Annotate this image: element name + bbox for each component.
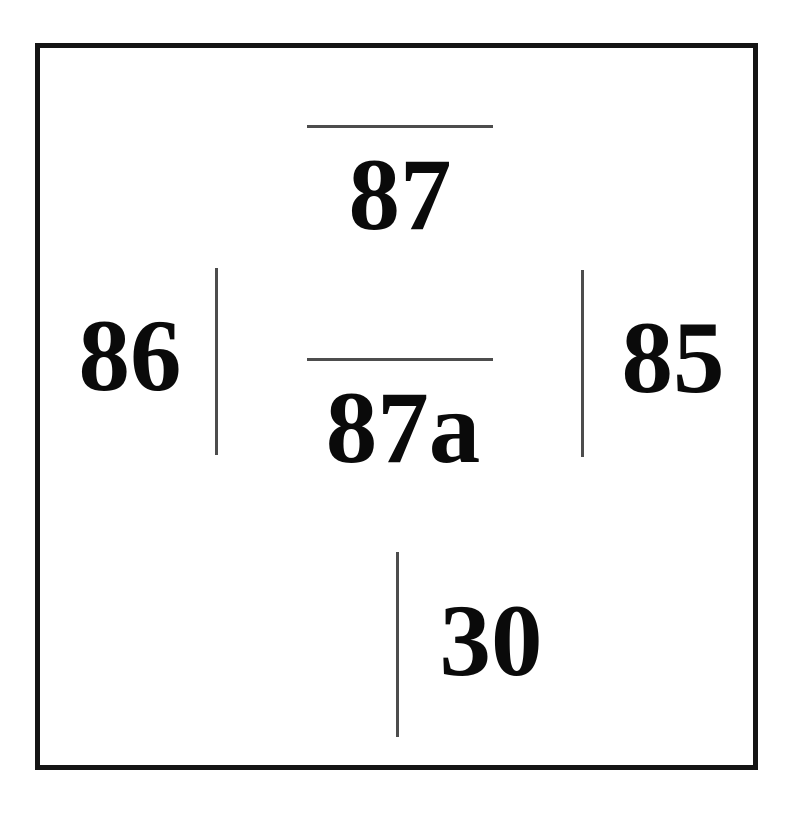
pin-87-label: 87 (300, 144, 500, 247)
pin-87a-terminal-line (307, 358, 493, 361)
pin-87-terminal-line (307, 125, 493, 128)
pin-86-label: 86 (30, 305, 230, 408)
pin-86-terminal-line (215, 268, 218, 455)
pin-85-label: 85 (573, 307, 773, 410)
relay-pinout-diagram: 87 87a 86 85 30 (0, 0, 800, 818)
pin-87a-label: 87a (303, 377, 503, 480)
pin-30-label: 30 (391, 590, 591, 693)
